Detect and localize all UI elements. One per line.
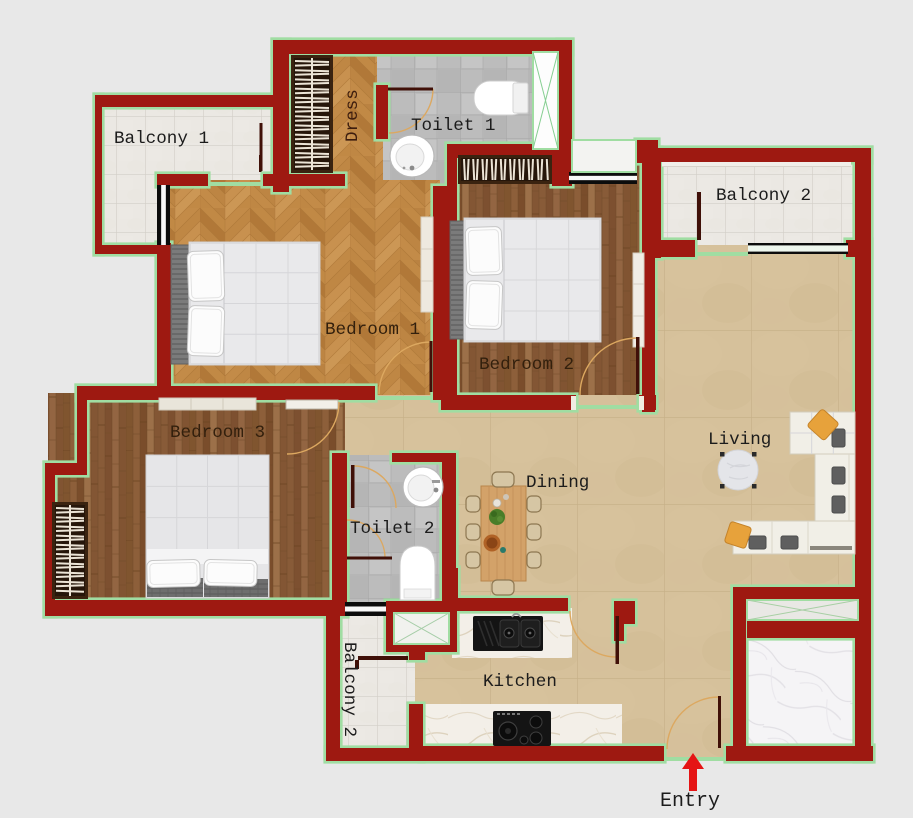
svg-text:Balcony 2: Balcony 2 (339, 642, 359, 737)
svg-text:Toilet 1: Toilet 1 (411, 116, 495, 136)
svg-text:Dress: Dress (343, 89, 363, 142)
svg-text:Bedroom 2: Bedroom 2 (479, 355, 574, 375)
svg-text:Balcony 1: Balcony 1 (114, 129, 209, 149)
svg-text:Entry: Entry (660, 790, 720, 813)
svg-text:Balcony 2: Balcony 2 (716, 186, 811, 206)
svg-text:Toilet 2: Toilet 2 (350, 519, 434, 539)
svg-text:Living: Living (708, 430, 771, 450)
svg-text:Bedroom 3: Bedroom 3 (170, 423, 265, 443)
svg-text:Kitchen: Kitchen (483, 672, 557, 692)
svg-text:Bedroom 1: Bedroom 1 (325, 320, 420, 340)
svg-text:Dining: Dining (526, 473, 589, 493)
